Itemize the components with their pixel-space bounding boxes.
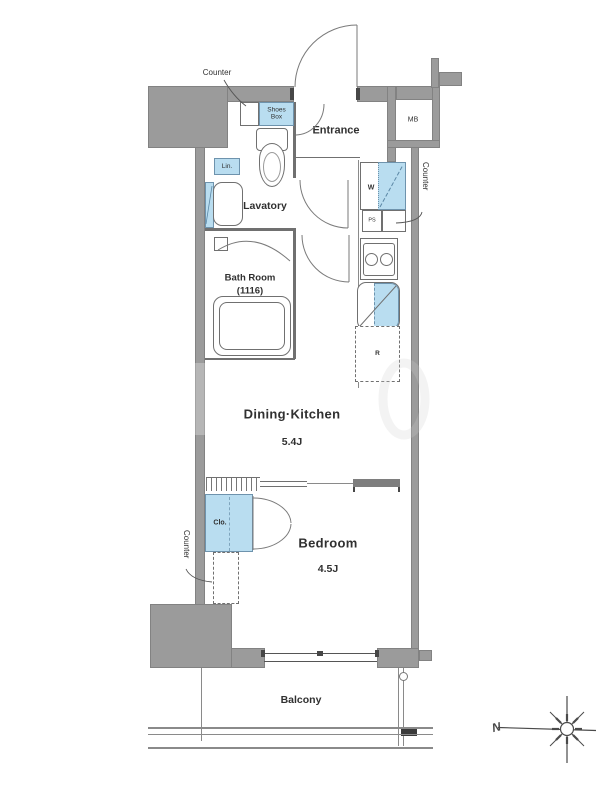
washer-pan [378,162,406,210]
compass-north-label: N [490,719,502,735]
stove-burner-left [365,253,378,266]
dining-kitchen-size: 5.4J [282,437,302,448]
counter-left-label: Counter [182,530,190,558]
partition-wall-right [353,479,400,487]
closet-doors-icon [253,496,291,550]
window-tick-center [317,651,323,656]
stove-burner-right [380,253,393,266]
closet: Clo. [205,494,253,552]
bathtub-inner [219,302,285,350]
counter-area-right [382,210,406,232]
dining-kitchen-label: Dining·Kitchen [244,408,341,421]
wall-right-outer [411,147,419,652]
wall-pillar-top-left [148,86,228,148]
partition-sliding-door [307,483,353,484]
linen-label: Lin. [222,163,232,170]
balcony-side-left [201,668,202,741]
lavatory-door-icon [300,180,348,228]
door-jamb-left [290,88,294,100]
bath-room-label: Bath Room [225,273,276,283]
entrance-door-icon [295,25,357,87]
wall-lavatory-bath [205,228,294,231]
closet-door-split [229,497,230,551]
railing-line-1 [148,727,433,729]
partition-wall-left [260,481,307,487]
plan-linework: N [0,0,600,800]
balcony-label: Balcony [281,695,322,706]
window-tick-right [375,650,379,657]
linen-cabinet: Lin. [214,158,240,175]
counter-right-label: Counter [421,162,429,190]
wall-left-outer [195,147,205,605]
railing-line-3 [148,747,433,749]
bedroom-label: Bedroom [298,537,357,550]
partition-tick-left [353,487,355,492]
kitchen-counter-hatch [206,477,260,491]
shoes-box-label: Shoes Box [262,107,292,122]
railing-line-2 [148,734,433,735]
door-jamb-right [356,88,360,100]
bath-room-size: (1116) [237,286,263,296]
closet-label: Clo. [213,520,226,527]
floorplan: Shoes Box Lin. Lavatory Entrance MB Bath… [0,0,600,800]
wall-bath-bottom [205,358,295,360]
entrance-label: Entrance [312,126,359,137]
wall-entrance-right [387,86,396,162]
entrance-step-line [296,157,360,158]
pipe-space: PS [362,210,382,232]
wall-pillar-bottom-left [150,604,232,668]
dk-door-icon [302,235,349,282]
pipe-space-label: PS [368,218,375,224]
toilet-bowl-inner [263,152,281,182]
counter-top-label: Counter [203,69,231,77]
counter-below-closet [213,552,239,604]
wall-bottom-extension [419,650,432,661]
wall-top-a [227,86,294,102]
wall-mb-right [432,86,440,147]
bedroom-size: 4.5J [318,564,338,575]
refrigerator-space: R [355,326,400,382]
washer-label: W [368,185,375,192]
sink-drainer [374,283,399,329]
refrigerator-label: R [375,351,380,358]
bath-control-icon [214,237,228,251]
wall-hall-lower [293,228,296,359]
window-tick-left [261,650,265,657]
wall-bottom-left [231,648,265,668]
wash-basin-icon [213,182,243,226]
drain-circle-icon [399,672,408,681]
counter-strip-top [240,102,259,126]
partition-tick-right [398,487,400,492]
wall-notch-horizontal [439,72,462,86]
compass-icon: N [490,696,596,763]
meter-box-label: MB [408,117,419,124]
wall-notch-vertical [431,58,439,88]
lavatory-label: Lavatory [243,201,287,212]
wall-bottom-right [377,648,419,668]
shoes-box: Shoes Box [259,102,294,126]
bath-door-arc [218,241,290,261]
